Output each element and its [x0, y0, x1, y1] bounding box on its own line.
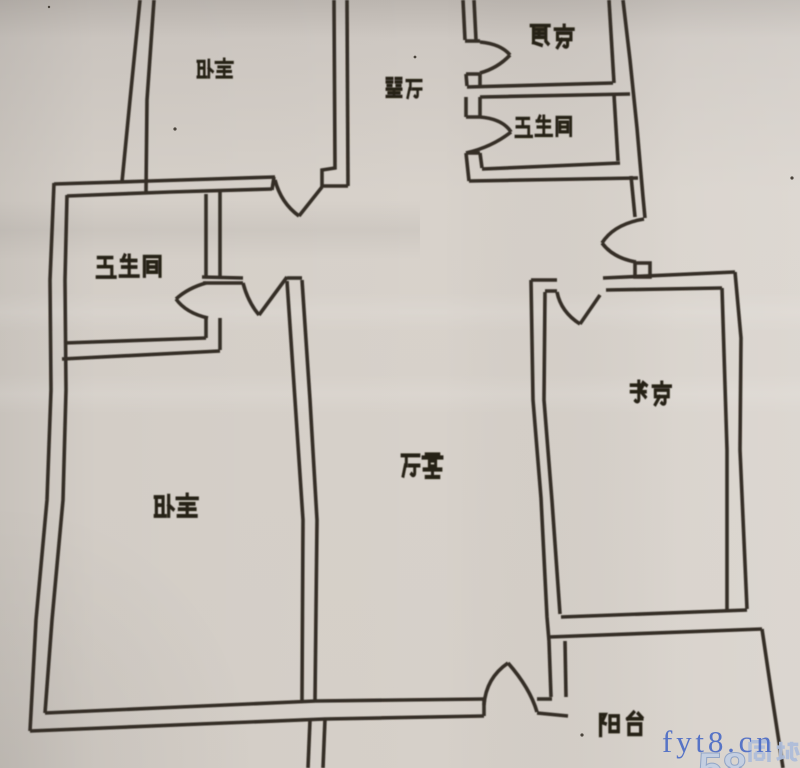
svg-text:fyt8.cn: fyt8.cn: [662, 724, 776, 759]
